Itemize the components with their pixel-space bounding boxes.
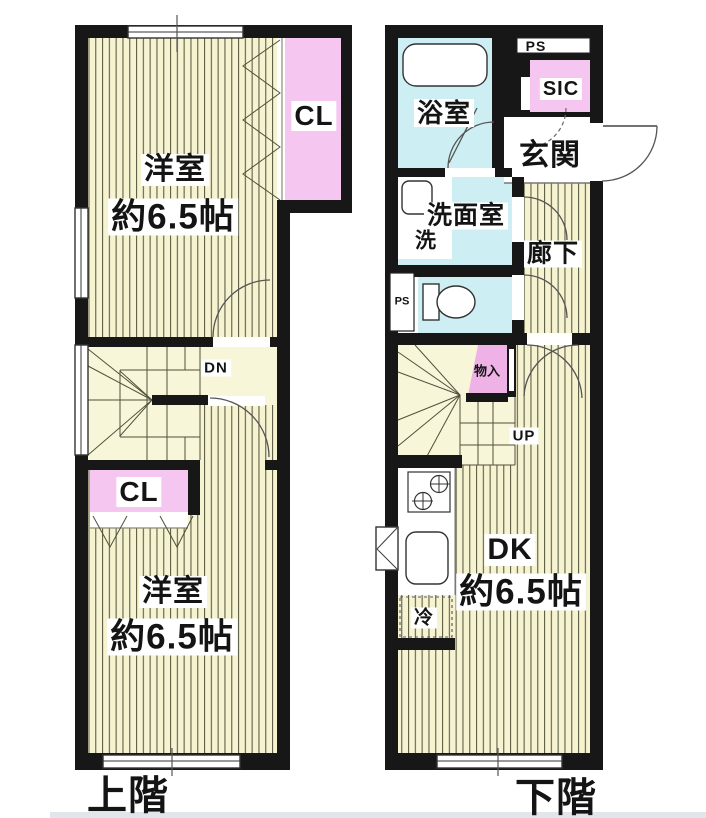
upper-bedroom2-size: 約6.5帖 <box>107 619 237 656</box>
upper-bedroom1-label: 洋室 <box>141 154 209 186</box>
door-opening <box>527 333 572 345</box>
entrance-opening <box>590 123 603 181</box>
upper-closet2-label: CL <box>116 477 161 507</box>
sic-door-opening <box>521 77 530 110</box>
upper-bedroom2-label: 洋室 <box>139 576 207 608</box>
kitchen-back-door <box>376 527 398 570</box>
hallway-label: 廊下 <box>524 241 582 268</box>
upper-floor-title: 上階 <box>87 776 169 816</box>
floorplan-page: 洋室 約6.5帖 CL DN CL 洋室 約6.5帖 上階 浴室 PS SIC … <box>0 0 706 818</box>
sink-icon <box>406 532 448 584</box>
dk-label: DK <box>484 534 535 566</box>
lower-stair-direction: UP <box>510 428 539 445</box>
entrance-label: 玄関 <box>519 141 581 171</box>
door-opening <box>445 168 495 177</box>
sic-label: SIC <box>540 78 582 100</box>
fridge-label: 冷 <box>411 608 437 629</box>
upper-bedroom1-floor <box>88 38 277 337</box>
upper-closet1-label: CL <box>291 101 336 131</box>
entrance-door <box>602 126 657 181</box>
washer-label: 洗 <box>415 231 437 252</box>
bathroom-label: 浴室 <box>414 99 474 127</box>
door-opening <box>213 337 270 347</box>
door-opening <box>512 275 524 320</box>
kitchen <box>398 468 455 595</box>
bathtub-icon <box>403 44 487 86</box>
door-opening <box>512 197 524 242</box>
toilet-bowl-icon <box>437 286 475 318</box>
ps-top-label: PS <box>526 39 547 53</box>
storage-label: 物入 <box>474 365 500 378</box>
upper-bedroom1-size: 約6.5帖 <box>108 199 238 236</box>
washroom-label: 洗面室 <box>424 203 508 230</box>
stair-mid-rail <box>152 395 208 405</box>
dk-size: 約6.5帖 <box>456 574 586 611</box>
upper-stair-direction: DN <box>201 360 231 377</box>
lower-floor-plan <box>376 25 657 776</box>
lower-floor-title: 下階 <box>515 778 597 818</box>
ps-side-label: PS <box>395 297 410 308</box>
floorplan-canvas <box>0 0 706 818</box>
